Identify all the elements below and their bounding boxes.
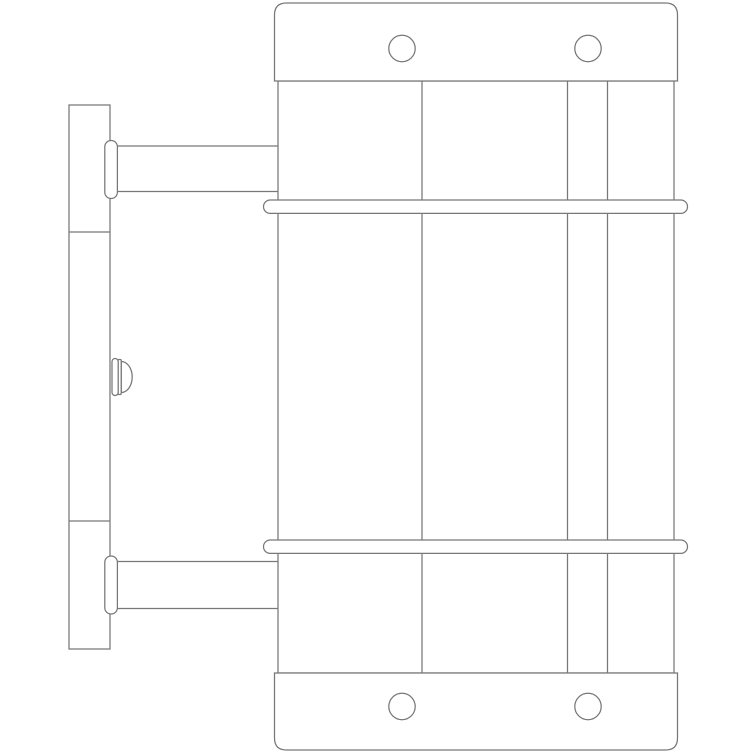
bottom-cap [275, 673, 678, 750]
wall-plate [69, 105, 110, 649]
upper-retaining-band [264, 200, 688, 213]
bottom-cap-hole-right [575, 693, 601, 719]
lower-arm-collar [105, 556, 118, 614]
upper-arm-collar [105, 141, 118, 199]
adjustment-screw-shaft [112, 359, 118, 396]
lower-retaining-band [264, 540, 688, 553]
drawing-svg [0, 0, 755, 755]
cylinder-body [278, 81, 674, 673]
top-cap-hole-right [575, 35, 601, 61]
top-cap [275, 3, 678, 81]
top-cap-hole-left [389, 35, 415, 61]
adjustment-screw-dome [121, 362, 132, 393]
bottom-cap-hole-left [389, 693, 415, 719]
technical-drawing [0, 0, 755, 755]
